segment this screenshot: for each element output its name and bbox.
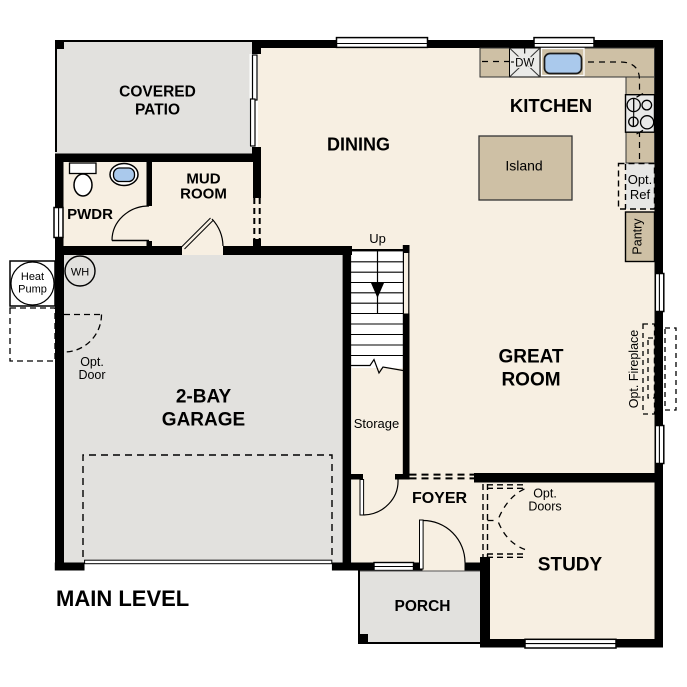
svg-text:DW: DW [515, 58, 534, 70]
svg-text:Doors: Doors [528, 500, 561, 514]
svg-text:FOYER: FOYER [412, 490, 468, 507]
svg-text:PWDR: PWDR [67, 206, 113, 223]
svg-text:Pantry: Pantry [631, 218, 645, 255]
svg-text:Heat: Heat [21, 271, 44, 283]
svg-text:Storage: Storage [354, 416, 400, 431]
svg-text:ROOM: ROOM [501, 370, 560, 391]
svg-text:Opt.: Opt. [533, 487, 557, 501]
svg-text:PATIO: PATIO [135, 102, 180, 119]
svg-text:2-BAY: 2-BAY [176, 387, 232, 408]
svg-text:DINING: DINING [327, 135, 390, 155]
svg-text:Pump: Pump [18, 284, 47, 296]
svg-text:Opt. Fireplace: Opt. Fireplace [627, 330, 641, 409]
svg-text:GREAT: GREAT [498, 347, 563, 368]
svg-text:GARAGE: GARAGE [162, 410, 245, 431]
svg-text:Up: Up [369, 231, 386, 246]
svg-text:COVERED: COVERED [119, 84, 196, 101]
svg-text:MAIN LEVEL: MAIN LEVEL [56, 586, 189, 611]
svg-text:Door: Door [78, 368, 105, 382]
svg-text:Opt.: Opt. [80, 355, 104, 369]
svg-text:ROOM: ROOM [180, 186, 227, 203]
svg-text:STUDY: STUDY [538, 555, 603, 576]
svg-text:KITCHEN: KITCHEN [510, 95, 592, 116]
svg-text:PORCH: PORCH [395, 598, 451, 615]
svg-text:Island: Island [505, 158, 542, 174]
svg-text:Opt.: Opt. [628, 172, 653, 187]
svg-text:WH: WH [71, 267, 89, 279]
svg-text:Ref: Ref [630, 187, 651, 202]
